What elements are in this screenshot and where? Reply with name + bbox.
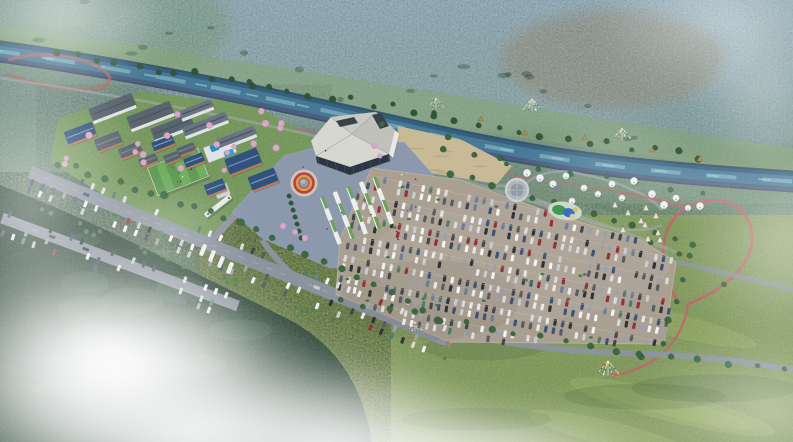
parking-bush xyxy=(401,186,405,189)
forest-dapple xyxy=(63,323,112,346)
flag xyxy=(617,372,619,374)
tent-door xyxy=(651,195,652,196)
tree xyxy=(725,361,731,367)
tree xyxy=(668,187,673,192)
tree xyxy=(191,68,198,75)
tree xyxy=(156,70,161,75)
tree xyxy=(432,110,437,115)
scrub-bush xyxy=(223,277,227,281)
tree xyxy=(295,222,299,226)
parking-bush xyxy=(540,273,544,276)
meadow-shade xyxy=(401,408,552,431)
tree xyxy=(677,252,682,257)
parking-bush xyxy=(421,297,425,300)
tree xyxy=(438,318,443,323)
forest-dapple xyxy=(157,354,227,377)
person xyxy=(177,181,178,182)
flag xyxy=(431,103,432,104)
blossom-tree xyxy=(62,161,68,167)
dome-tent xyxy=(536,174,543,181)
tree xyxy=(701,191,705,195)
tree xyxy=(132,187,138,193)
tree xyxy=(411,110,418,117)
flag xyxy=(443,106,444,107)
scrub-bush xyxy=(48,210,53,215)
scrub-bush xyxy=(225,280,229,284)
tent-door xyxy=(611,185,612,186)
blossom-tree xyxy=(135,141,140,146)
parking-bush xyxy=(583,273,587,276)
tree xyxy=(504,162,508,166)
parking-bush xyxy=(365,299,369,302)
tree xyxy=(208,208,213,213)
flag xyxy=(432,107,433,108)
flag xyxy=(436,100,437,101)
tree xyxy=(209,77,214,82)
flag xyxy=(604,364,606,366)
flag xyxy=(619,131,620,132)
person xyxy=(349,236,351,238)
person xyxy=(182,176,183,177)
tree xyxy=(587,343,593,349)
flag xyxy=(428,106,429,107)
flag xyxy=(413,327,414,328)
tree xyxy=(564,338,569,343)
tree-clump xyxy=(165,32,173,35)
person xyxy=(352,221,354,223)
flag xyxy=(419,326,420,327)
flag xyxy=(597,372,599,374)
tree xyxy=(665,317,672,324)
flag xyxy=(439,107,440,108)
tree-clump xyxy=(138,44,148,49)
tree xyxy=(675,147,682,154)
scrub-bush xyxy=(355,328,359,332)
flag xyxy=(601,368,603,370)
blossom-tree xyxy=(206,122,212,128)
blossom-tree xyxy=(280,223,286,229)
tree xyxy=(389,289,395,295)
scrub-bush xyxy=(443,357,446,360)
tree-clump xyxy=(498,73,511,79)
flag xyxy=(537,105,538,106)
person xyxy=(397,238,399,240)
flag xyxy=(614,368,616,370)
scrub-bush xyxy=(340,318,343,321)
flag xyxy=(526,105,527,106)
blossom-tree xyxy=(262,120,269,127)
flag xyxy=(438,100,439,101)
tent-door xyxy=(526,174,527,175)
tree xyxy=(530,195,535,200)
tree xyxy=(536,167,541,172)
parking-bush xyxy=(524,279,528,282)
person xyxy=(302,166,304,168)
tree xyxy=(269,235,275,241)
scrub-bush xyxy=(160,253,164,257)
flag xyxy=(408,329,409,330)
flag xyxy=(528,109,529,110)
parking-bush xyxy=(589,336,593,339)
tree xyxy=(354,274,360,280)
scrub-bush xyxy=(311,308,315,312)
scrub-bush xyxy=(40,207,44,211)
person xyxy=(191,169,192,170)
blossom-tree xyxy=(214,141,220,147)
tree xyxy=(110,60,116,66)
tree xyxy=(694,356,700,362)
flag xyxy=(421,329,422,330)
tree-clump xyxy=(430,74,438,78)
flag xyxy=(433,104,434,105)
tree xyxy=(266,84,271,89)
aerial-render-stage xyxy=(0,0,793,442)
flag xyxy=(434,100,435,101)
flag xyxy=(535,109,536,110)
tree xyxy=(85,172,91,178)
tree xyxy=(284,89,288,93)
blossom-tree xyxy=(232,144,237,149)
gate-post xyxy=(228,197,230,199)
flag xyxy=(440,103,441,104)
gate-post xyxy=(207,213,209,215)
scrub-bush xyxy=(305,309,309,313)
blossom-tree xyxy=(178,165,184,171)
scrub-bush xyxy=(78,221,82,225)
flag xyxy=(620,131,621,132)
forest-dapple xyxy=(31,381,102,396)
tree xyxy=(680,277,685,282)
tree xyxy=(488,182,495,189)
flag xyxy=(616,134,617,135)
sand-track xyxy=(474,165,487,167)
flag xyxy=(613,137,614,138)
person xyxy=(415,206,417,208)
tree xyxy=(293,215,297,219)
scene-canvas xyxy=(0,0,793,442)
tree xyxy=(329,96,336,103)
tent-door xyxy=(565,177,566,178)
tree xyxy=(629,222,635,228)
tree xyxy=(673,236,678,241)
tree xyxy=(537,333,542,338)
tree xyxy=(379,121,385,127)
tree xyxy=(565,136,571,142)
parking-bush xyxy=(386,256,390,259)
tree xyxy=(53,50,60,57)
tree xyxy=(611,218,616,223)
tree xyxy=(472,152,477,157)
forest-dapple xyxy=(208,319,271,340)
tree xyxy=(613,348,620,355)
tent-door xyxy=(571,202,572,203)
flag xyxy=(529,105,530,106)
flag xyxy=(618,138,619,139)
blossom-tree xyxy=(302,235,308,241)
flag xyxy=(610,364,612,366)
tree xyxy=(690,242,696,248)
flag xyxy=(603,373,605,375)
tree xyxy=(782,367,787,372)
tree xyxy=(661,341,666,346)
tree xyxy=(238,219,245,226)
flag xyxy=(410,326,411,327)
tree xyxy=(489,326,496,333)
flag xyxy=(625,138,626,139)
tree xyxy=(304,93,310,99)
tree xyxy=(94,58,100,64)
parking-bush xyxy=(529,281,533,284)
tree xyxy=(451,118,457,124)
scrub-bush xyxy=(143,250,148,255)
dome-tent xyxy=(696,202,703,209)
tree xyxy=(348,95,353,100)
tent-door xyxy=(621,199,622,200)
tree xyxy=(440,146,446,152)
tree xyxy=(497,125,502,130)
parking-bush xyxy=(578,274,582,277)
tree-clump xyxy=(207,26,214,30)
person xyxy=(325,150,327,152)
tree xyxy=(287,194,291,198)
rock-highlight xyxy=(300,180,306,184)
parking-bush xyxy=(435,304,439,307)
scrub-bush xyxy=(91,233,96,238)
tree-clump xyxy=(337,97,344,102)
person xyxy=(326,228,328,230)
tree xyxy=(464,319,469,324)
parking-bush xyxy=(566,298,570,301)
person xyxy=(396,231,398,233)
tree xyxy=(339,265,346,272)
blossom-tree xyxy=(141,159,147,165)
tree xyxy=(687,253,692,258)
blossom-tree xyxy=(64,156,69,161)
tent-door xyxy=(633,182,634,183)
tree xyxy=(371,104,376,109)
tree xyxy=(517,130,521,134)
flag xyxy=(412,330,413,331)
tree-clump xyxy=(457,64,470,69)
blossom-tree xyxy=(222,168,227,173)
blossom-tree xyxy=(371,143,376,148)
person xyxy=(172,167,173,168)
scrub-bush xyxy=(98,229,103,234)
tree xyxy=(447,171,454,178)
parking-bush xyxy=(482,299,486,302)
tree xyxy=(721,282,726,287)
tree xyxy=(178,202,184,208)
person xyxy=(370,214,372,216)
forest-dapple xyxy=(61,271,108,294)
flag xyxy=(612,373,614,375)
scrub-bush xyxy=(199,272,203,276)
scrub-bush xyxy=(84,229,89,234)
tree-clump xyxy=(240,50,248,56)
tree xyxy=(511,332,515,336)
tree xyxy=(668,354,674,360)
blossom-tree xyxy=(85,132,92,139)
tree xyxy=(287,245,293,251)
flag xyxy=(530,102,531,103)
tree xyxy=(118,178,124,184)
tree xyxy=(412,309,418,315)
blossom-tree xyxy=(164,132,170,138)
tree xyxy=(629,148,634,153)
tree xyxy=(289,201,293,205)
tent-door xyxy=(675,199,676,200)
tent-door xyxy=(597,195,598,196)
flag xyxy=(534,105,535,106)
flag xyxy=(433,100,434,101)
tree xyxy=(371,282,376,287)
flag xyxy=(412,324,413,325)
tree xyxy=(497,155,503,161)
tree-clump xyxy=(295,66,304,72)
tree xyxy=(387,306,393,312)
tree xyxy=(470,175,475,180)
tree xyxy=(229,77,235,83)
flag xyxy=(619,134,620,135)
flag xyxy=(415,324,416,325)
blossom-tree xyxy=(174,111,180,117)
blossom-tree xyxy=(225,150,230,155)
tree xyxy=(604,174,609,179)
flag xyxy=(606,364,608,366)
tree xyxy=(73,163,78,168)
tent-door xyxy=(552,185,553,186)
tree xyxy=(360,304,365,309)
tree-clump xyxy=(125,52,137,56)
blossom-tree xyxy=(292,229,298,235)
tree xyxy=(405,298,410,303)
dome-tent xyxy=(523,169,530,176)
person xyxy=(180,181,181,182)
parking-bush xyxy=(407,218,411,221)
blossom-tree xyxy=(278,120,284,126)
parking-bush xyxy=(582,290,586,293)
tree xyxy=(420,307,426,313)
blossom-tree xyxy=(378,154,383,159)
tree xyxy=(591,211,597,217)
tree xyxy=(75,51,80,56)
parking-bush xyxy=(393,226,397,229)
flag xyxy=(528,101,529,102)
flag xyxy=(629,137,630,138)
parking-bush xyxy=(436,198,440,201)
flag xyxy=(540,108,541,109)
parking-bush xyxy=(345,278,349,281)
tree-clump xyxy=(584,104,591,108)
tree xyxy=(674,299,679,304)
flag xyxy=(609,364,611,366)
scrub-bush xyxy=(330,317,335,322)
tree xyxy=(247,79,252,84)
blossom-tree xyxy=(140,151,146,157)
tree xyxy=(191,203,196,208)
person xyxy=(341,212,343,214)
flag xyxy=(624,134,625,135)
blossom-tree xyxy=(273,144,280,151)
flag xyxy=(417,330,418,331)
flag xyxy=(627,134,628,135)
flag xyxy=(622,131,623,132)
scrub-bush xyxy=(182,265,187,270)
scrub-bush xyxy=(233,278,237,282)
tree xyxy=(587,141,593,147)
tree xyxy=(160,191,168,199)
person xyxy=(401,174,403,176)
scrub-bush xyxy=(166,257,170,261)
tree xyxy=(55,162,61,168)
scrub-bush xyxy=(300,309,304,313)
meadow-shade xyxy=(631,374,793,402)
flag xyxy=(534,101,535,102)
flag xyxy=(413,324,414,325)
tree xyxy=(253,226,258,231)
flag xyxy=(533,102,534,103)
flag xyxy=(610,369,612,371)
tree-clump xyxy=(406,89,415,93)
tree xyxy=(338,297,343,302)
blossom-tree xyxy=(133,149,138,154)
dome-tent xyxy=(660,201,668,209)
dome-tent xyxy=(648,190,655,197)
tent-door xyxy=(539,179,540,180)
sand-track xyxy=(432,155,450,157)
tree xyxy=(291,208,295,212)
tree xyxy=(636,351,642,357)
tent-door xyxy=(663,206,664,207)
tree xyxy=(137,63,143,69)
person xyxy=(407,210,409,212)
parking-bush xyxy=(494,205,498,208)
scrub-bush xyxy=(234,283,238,287)
person xyxy=(178,172,179,173)
tree xyxy=(391,102,396,107)
tree xyxy=(301,251,308,258)
tree-clump xyxy=(32,37,45,42)
flag xyxy=(523,108,524,109)
tree xyxy=(148,191,154,197)
tree xyxy=(221,216,226,221)
scrub-bush xyxy=(139,246,143,250)
flag xyxy=(417,324,418,325)
tent-door xyxy=(699,207,700,208)
dome-tent xyxy=(609,181,616,188)
scrub-bush xyxy=(274,296,279,301)
flag xyxy=(624,131,625,132)
tree xyxy=(476,123,481,128)
tree-clump xyxy=(525,74,535,80)
tree-clump xyxy=(539,89,547,93)
tree xyxy=(755,363,760,368)
person xyxy=(415,178,417,180)
tree xyxy=(171,70,177,76)
blossom-tree xyxy=(258,108,264,114)
tree xyxy=(445,134,451,140)
blossom-tree xyxy=(251,140,257,146)
tree xyxy=(321,258,327,264)
tree xyxy=(536,133,543,140)
person xyxy=(423,186,425,188)
scrub-bush xyxy=(294,306,297,309)
tent-door xyxy=(687,209,688,210)
tree xyxy=(101,175,108,182)
flag xyxy=(604,369,606,371)
tent-door xyxy=(583,189,584,190)
dome-tent xyxy=(630,177,637,184)
